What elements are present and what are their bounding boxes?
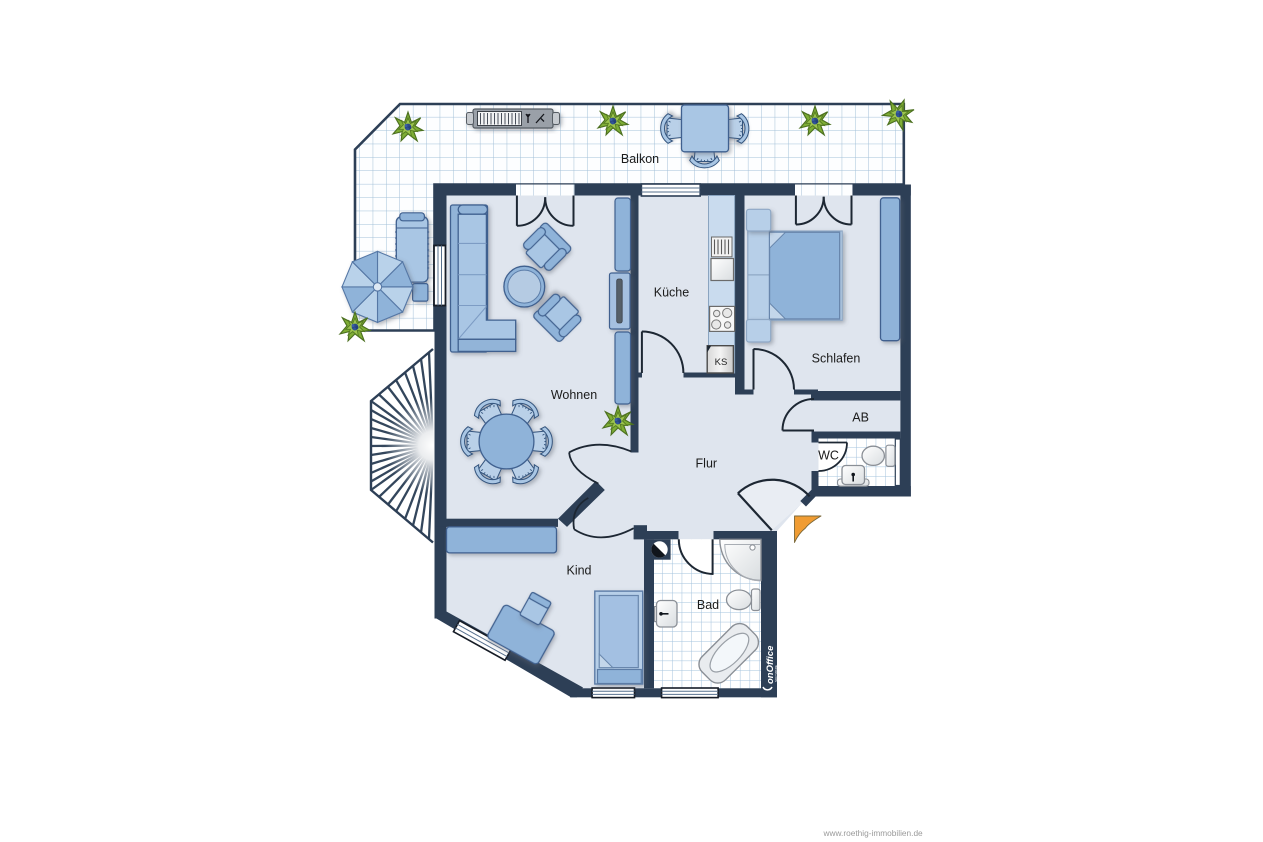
svg-text:www.roethig-immobilien.de: www.roethig-immobilien.de bbox=[823, 828, 924, 838]
svg-text:Bad: Bad bbox=[697, 598, 719, 612]
svg-text:Schlafen: Schlafen bbox=[812, 352, 861, 366]
svg-text:Küche: Küche bbox=[654, 286, 689, 300]
svg-text:Wohnen: Wohnen bbox=[551, 388, 597, 402]
svg-text:SOFTWARE: SOFTWARE bbox=[774, 665, 778, 682]
svg-text:Balkon: Balkon bbox=[621, 152, 659, 166]
svg-text:WC: WC bbox=[818, 449, 839, 463]
svg-text:Flur: Flur bbox=[696, 457, 718, 471]
svg-text:KS: KS bbox=[715, 357, 728, 368]
svg-text:AB: AB bbox=[852, 411, 869, 425]
svg-text:Kind: Kind bbox=[566, 564, 591, 578]
